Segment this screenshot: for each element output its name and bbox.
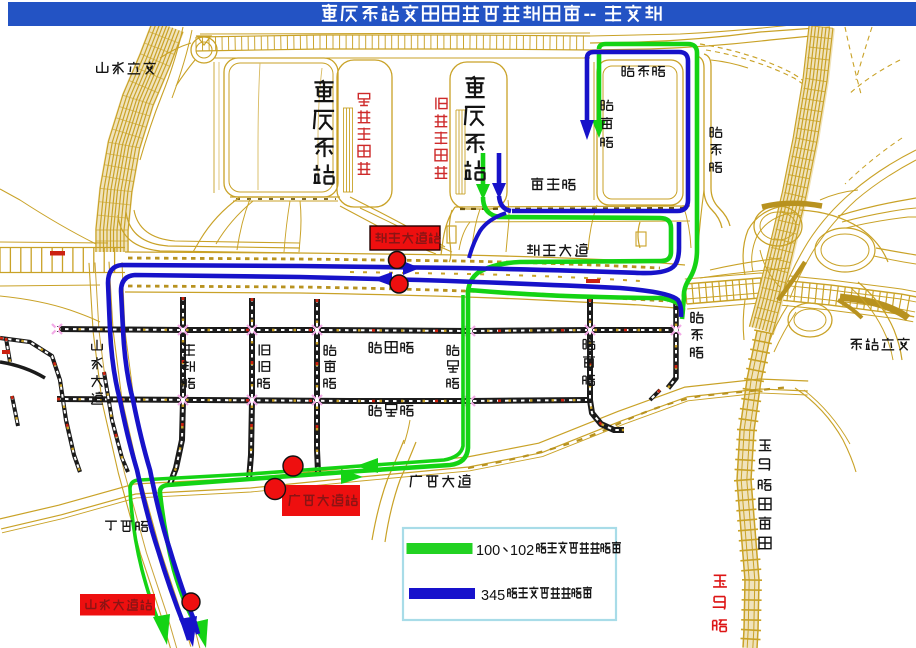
svg-text:102: 102 bbox=[510, 543, 534, 559]
svg-text:100: 100 bbox=[476, 543, 500, 559]
svg-text:345: 345 bbox=[481, 588, 505, 604]
svg-text:--: -- bbox=[584, 4, 597, 25]
